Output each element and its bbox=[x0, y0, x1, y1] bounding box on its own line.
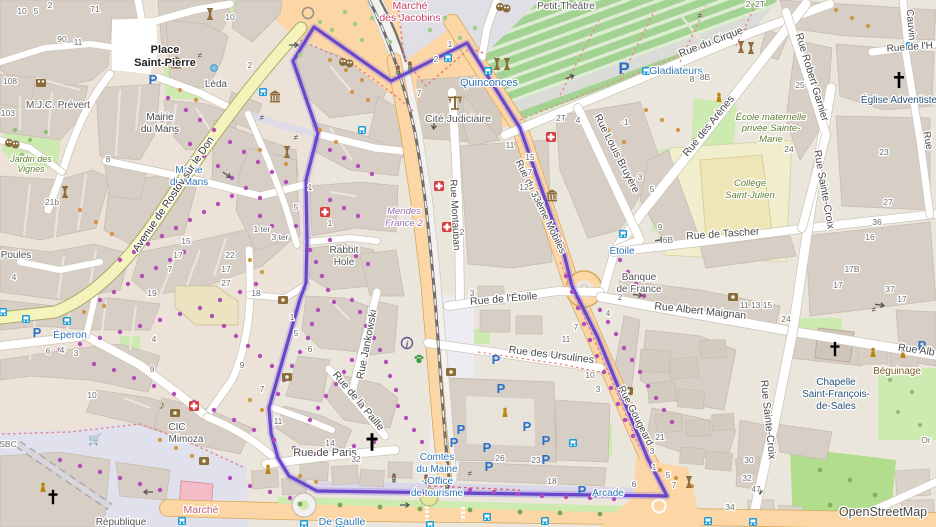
svg-text:2: 2 bbox=[618, 292, 623, 302]
svg-text:5: 5 bbox=[666, 470, 671, 480]
svg-text:32: 32 bbox=[742, 473, 752, 483]
svg-text:P: P bbox=[542, 433, 551, 448]
svg-text:2T: 2T bbox=[755, 0, 765, 9]
svg-text:6B: 6B bbox=[663, 235, 674, 245]
svg-text:17: 17 bbox=[221, 264, 231, 274]
svg-text:12: 12 bbox=[519, 182, 529, 192]
svg-text:Comtes: Comtes bbox=[420, 452, 454, 463]
svg-text:1: 1 bbox=[328, 218, 333, 228]
svg-text:≠: ≠ bbox=[698, 11, 703, 20]
svg-text:Chapelle: Chapelle bbox=[816, 377, 856, 388]
svg-text:M.J.C. Prévert: M.J.C. Prévert bbox=[26, 100, 90, 111]
svg-text:25: 25 bbox=[795, 80, 805, 90]
svg-text:7: 7 bbox=[260, 384, 265, 394]
svg-text:- Office: - Office bbox=[421, 476, 453, 487]
svg-text:Cité Judiciaire: Cité Judiciaire bbox=[425, 113, 491, 125]
svg-text:16: 16 bbox=[865, 232, 875, 242]
svg-text:≠: ≠ bbox=[468, 469, 473, 478]
svg-text:103: 103 bbox=[1, 108, 15, 118]
svg-text:3: 3 bbox=[470, 288, 475, 298]
svg-text:7: 7 bbox=[574, 322, 579, 332]
svg-text:15: 15 bbox=[181, 236, 191, 246]
svg-text:2: 2 bbox=[434, 54, 439, 64]
svg-text:de-Sales: de-Sales bbox=[816, 401, 855, 412]
svg-text:10: 10 bbox=[87, 390, 97, 400]
svg-text:Marché: Marché bbox=[183, 504, 218, 516]
svg-text:1 ter: 1 ter bbox=[253, 224, 270, 234]
svg-text:21b: 21b bbox=[45, 197, 59, 207]
svg-text:8: 8 bbox=[690, 74, 695, 84]
svg-text:5: 5 bbox=[34, 6, 39, 16]
svg-text:P: P bbox=[485, 459, 494, 474]
svg-text:🛒: 🛒 bbox=[88, 433, 102, 446]
svg-text:6: 6 bbox=[46, 346, 51, 356]
svg-text:du Mans: du Mans bbox=[141, 124, 179, 135]
svg-text:1: 1 bbox=[308, 182, 313, 192]
svg-text:30: 30 bbox=[744, 455, 754, 465]
svg-text:de France: de France bbox=[616, 284, 661, 295]
svg-text:Étoile: Étoile bbox=[609, 244, 634, 257]
svg-text:10: 10 bbox=[585, 370, 595, 380]
svg-text:Vignes: Vignes bbox=[17, 164, 45, 174]
svg-text:Poules: Poules bbox=[1, 250, 32, 261]
svg-text:11: 11 bbox=[274, 416, 283, 426]
svg-text:-1: -1 bbox=[621, 117, 629, 127]
svg-text:de tourisme: de tourisme bbox=[411, 488, 464, 499]
svg-text:Saint-François-: Saint-François- bbox=[802, 389, 870, 400]
svg-text:École maternelle: École maternelle bbox=[736, 112, 807, 123]
svg-text:Or: Or bbox=[921, 435, 931, 445]
svg-text:17: 17 bbox=[173, 250, 183, 260]
svg-text:26: 26 bbox=[495, 453, 505, 463]
svg-text:des Jacobins: des Jacobins bbox=[379, 12, 440, 24]
svg-text:108: 108 bbox=[3, 76, 17, 86]
svg-text:Collège: Collège bbox=[734, 178, 766, 189]
svg-text:8: 8 bbox=[106, 154, 111, 164]
svg-text:7: 7 bbox=[528, 167, 533, 177]
svg-text:privée Sainte-: privée Sainte- bbox=[741, 123, 801, 134]
svg-text:11: 11 bbox=[74, 37, 83, 47]
svg-text:Mimoza: Mimoza bbox=[168, 434, 203, 445]
svg-text:90: 90 bbox=[57, 34, 67, 44]
svg-text:17: 17 bbox=[897, 294, 907, 304]
svg-text:23: 23 bbox=[531, 455, 541, 465]
svg-text:2: 2 bbox=[746, 0, 751, 9]
svg-text:Léda: Léda bbox=[205, 79, 228, 90]
svg-text:≠: ≠ bbox=[260, 113, 265, 122]
svg-text:CIC: CIC bbox=[168, 422, 185, 433]
svg-text:P: P bbox=[578, 483, 587, 498]
svg-text:32: 32 bbox=[351, 454, 361, 464]
svg-text:27: 27 bbox=[221, 278, 231, 288]
svg-text:9: 9 bbox=[658, 222, 663, 232]
svg-text:Rue de Paris: Rue de Paris bbox=[293, 447, 357, 459]
svg-text:P: P bbox=[542, 452, 551, 467]
svg-text:Marché: Marché bbox=[392, 0, 427, 12]
svg-text:Arcade: Arcade bbox=[592, 488, 624, 499]
svg-text:P: P bbox=[149, 72, 158, 87]
svg-text:≠: ≠ bbox=[198, 51, 203, 60]
svg-text:14: 14 bbox=[325, 438, 335, 448]
svg-text:7: 7 bbox=[168, 264, 173, 274]
svg-text:P: P bbox=[483, 440, 492, 455]
svg-text:10: 10 bbox=[225, 12, 235, 22]
svg-text:du Maine: du Maine bbox=[416, 464, 458, 475]
svg-text:Rabbit: Rabbit bbox=[330, 245, 359, 256]
svg-text:Saint-Julien: Saint-Julien bbox=[725, 190, 775, 201]
svg-text:2T: 2T bbox=[556, 113, 566, 123]
svg-text:≠: ≠ bbox=[872, 305, 877, 314]
svg-text:36: 36 bbox=[872, 217, 882, 227]
svg-text:Quinconces: Quinconces bbox=[460, 77, 519, 89]
svg-text:4: 4 bbox=[60, 345, 65, 355]
svg-text:3: 3 bbox=[74, 348, 79, 358]
svg-text:Béguinage: Béguinage bbox=[873, 366, 921, 377]
svg-text:37: 37 bbox=[885, 284, 895, 294]
svg-text:24: 24 bbox=[784, 144, 794, 154]
svg-text:4: 4 bbox=[606, 308, 611, 318]
svg-text:17B: 17B bbox=[844, 264, 859, 274]
svg-text:4: 4 bbox=[152, 334, 157, 344]
svg-text:7: 7 bbox=[672, 480, 677, 490]
svg-text:2: 2 bbox=[248, 60, 253, 70]
svg-text:P: P bbox=[492, 352, 501, 367]
svg-text:71: 71 bbox=[90, 4, 100, 14]
svg-text:SBC: SBC bbox=[0, 439, 17, 449]
svg-text:2: 2 bbox=[48, 0, 53, 10]
svg-text:Éperon: Éperon bbox=[53, 328, 87, 341]
svg-text:Gladiateurs: Gladiateurs bbox=[649, 65, 703, 77]
svg-text:11: 11 bbox=[562, 334, 571, 344]
svg-text:11: 11 bbox=[506, 140, 515, 150]
svg-text:34: 34 bbox=[725, 502, 735, 512]
svg-text:De Gaulle: De Gaulle bbox=[319, 516, 366, 527]
svg-text:République: République bbox=[96, 517, 147, 527]
svg-text:3: 3 bbox=[638, 172, 643, 182]
svg-text:P: P bbox=[497, 381, 506, 396]
svg-text:9: 9 bbox=[150, 364, 155, 374]
svg-text:2: 2 bbox=[460, 227, 465, 237]
svg-text:Mairie: Mairie bbox=[146, 112, 174, 123]
svg-text:France 2: France 2 bbox=[385, 218, 423, 229]
svg-text:47: 47 bbox=[751, 484, 761, 494]
svg-text:10: 10 bbox=[17, 6, 27, 16]
svg-text:Marie: Marie bbox=[759, 134, 783, 145]
svg-text:5: 5 bbox=[650, 184, 655, 194]
svg-text:Petit-Théâtre: Petit-Théâtre bbox=[537, 1, 595, 12]
svg-text:♪: ♪ bbox=[159, 398, 165, 412]
svg-text:4: 4 bbox=[12, 272, 17, 282]
svg-text:5: 5 bbox=[294, 328, 299, 338]
svg-text:22: 22 bbox=[225, 250, 235, 260]
svg-text:P: P bbox=[523, 419, 532, 434]
svg-text:11 13 15: 11 13 15 bbox=[740, 300, 773, 310]
svg-text:24: 24 bbox=[781, 314, 791, 324]
svg-text:1: 1 bbox=[290, 312, 295, 322]
svg-text:1: 1 bbox=[652, 462, 657, 472]
svg-text:3 ter: 3 ter bbox=[271, 232, 288, 242]
svg-text:OpenStreetMap: OpenStreetMap bbox=[839, 505, 927, 519]
svg-text:Mendes: Mendes bbox=[387, 206, 421, 217]
svg-text:18: 18 bbox=[547, 476, 557, 486]
svg-text:21: 21 bbox=[655, 432, 665, 442]
svg-text:9: 9 bbox=[240, 360, 245, 370]
svg-text:Banque: Banque bbox=[622, 272, 657, 283]
svg-text:5: 5 bbox=[294, 202, 299, 212]
svg-text:P: P bbox=[457, 422, 466, 437]
svg-text:1: 1 bbox=[448, 39, 453, 49]
svg-text:15: 15 bbox=[525, 152, 535, 162]
svg-text:6: 6 bbox=[632, 479, 637, 489]
svg-text:4: 4 bbox=[576, 115, 581, 125]
svg-text:P: P bbox=[618, 59, 629, 78]
svg-text:P: P bbox=[33, 325, 42, 340]
svg-text:Jardin des: Jardin des bbox=[9, 154, 52, 164]
svg-text:Saint-Pierre: Saint-Pierre bbox=[134, 57, 196, 69]
svg-text:Église Adventiste: Église Adventiste bbox=[861, 93, 936, 106]
svg-text:19: 19 bbox=[147, 288, 157, 298]
svg-text:≠: ≠ bbox=[294, 133, 299, 142]
svg-text:8B: 8B bbox=[700, 72, 711, 82]
svg-text:Hole: Hole bbox=[334, 257, 355, 268]
svg-text:6: 6 bbox=[308, 344, 313, 354]
svg-text:3: 3 bbox=[596, 384, 601, 394]
svg-text:17: 17 bbox=[833, 280, 843, 290]
svg-text:27: 27 bbox=[883, 197, 893, 207]
svg-text:P: P bbox=[450, 435, 459, 450]
svg-text:3: 3 bbox=[650, 446, 655, 456]
svg-text:7: 7 bbox=[417, 88, 422, 98]
svg-text:18: 18 bbox=[251, 288, 261, 298]
svg-text:Place: Place bbox=[151, 44, 180, 56]
svg-text:23: 23 bbox=[879, 147, 889, 157]
